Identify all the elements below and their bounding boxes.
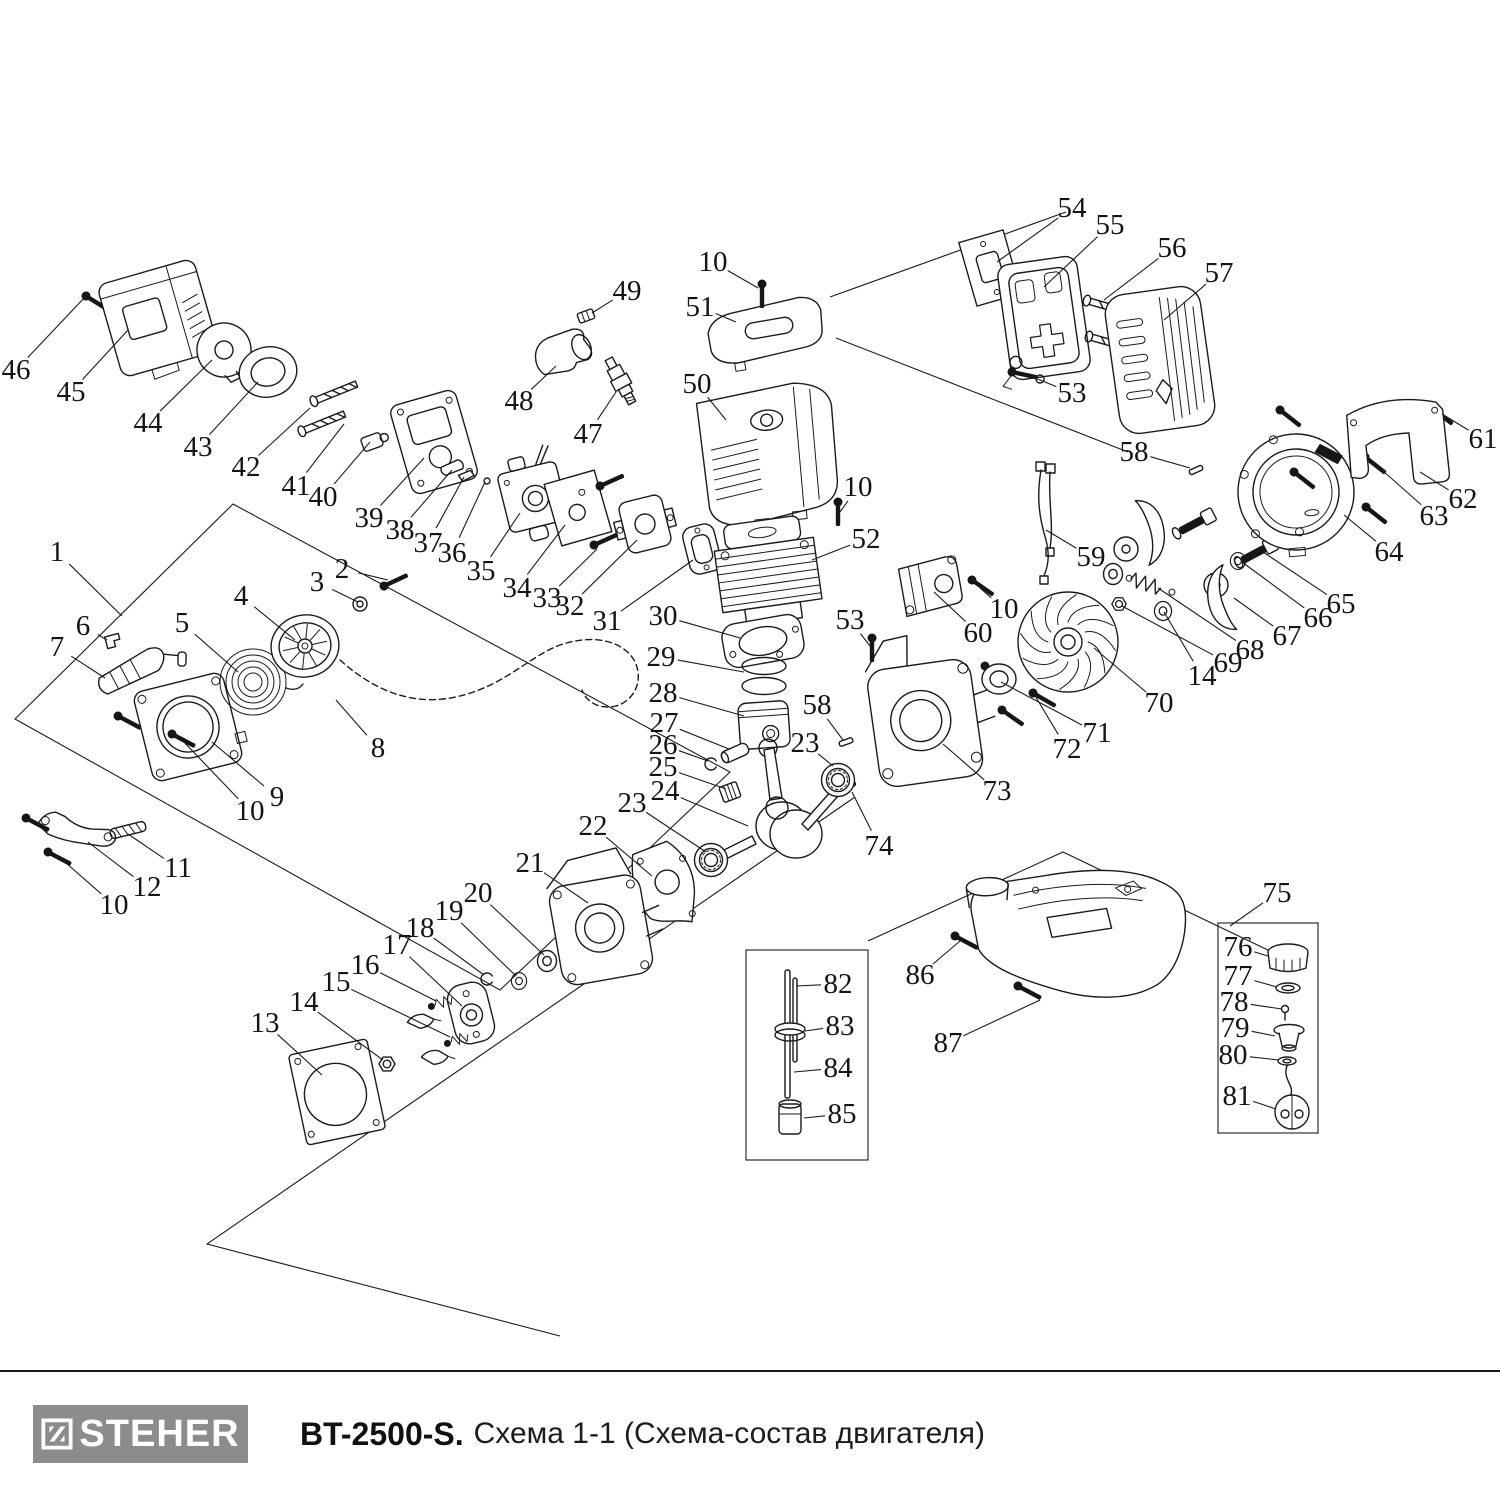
part-screw-10-top [758,280,767,309]
part-base-gasket-30 [720,612,806,669]
leader-line [1150,457,1190,468]
part-number-label: 34 [503,572,533,604]
part-washer-80 [1278,1057,1296,1065]
leader-line [332,589,358,602]
part-number-label: 16 [351,949,380,981]
part-fan-cover-64 [1233,429,1359,561]
part-washer-19 [511,973,526,990]
part-number-label: 66 [1304,602,1333,634]
part-engine-shroud-50 [695,379,843,532]
part-number-label: 11 [164,852,192,884]
leader-line [1344,515,1376,541]
part-fuel-cap-76 [1268,944,1308,972]
part-number-label: 8 [371,732,386,764]
leader-line [1122,606,1213,655]
part-clutch-shoe-left-67a [1135,496,1170,565]
part-number-label: 23 [618,787,647,819]
part-number-label: 45 [57,376,86,408]
leader-line [359,573,388,580]
part-number-label: 4 [234,580,249,612]
part-lever-b [420,1045,455,1067]
footer-divider [0,1370,1500,1372]
part-terminal-49 [577,309,595,324]
diagram-subtitle: Схема 1-1 (Схема-состав двигателя) [474,1417,985,1451]
brand-logo: STEHER [33,1405,248,1463]
part-fuel-filter-85 [779,1100,801,1134]
leader-line [679,773,726,789]
part-number-label: 46 [2,354,31,386]
part-number-label: 10 [100,889,129,921]
leader-line [1250,1057,1279,1060]
part-number-label: 57 [1205,257,1234,289]
part-number-label: 10 [990,593,1019,625]
leader-line [434,938,484,975]
part-washer-14b [1154,602,1171,621]
part-number-label: 53 [1058,377,1087,409]
part-number-label: 14 [290,986,320,1018]
part-number-label: 10 [844,471,873,503]
part-number-label: 21 [516,847,545,879]
leader-line [812,545,850,560]
part-number-label: 73 [983,775,1012,807]
part-number-label: 84 [824,1052,854,1084]
part-number-label: 43 [184,431,213,463]
leader-line [1234,598,1273,626]
leader-line [461,923,516,976]
part-cylinder-52 [711,514,824,629]
part-number-label: 64 [1375,536,1405,568]
part-bolt-cr2 [996,704,1026,729]
leader-line [1164,612,1193,661]
leader-line [804,1116,825,1118]
leader-line [582,540,637,594]
leader-line [728,271,758,288]
model-number: BT-2500-S. [300,1416,464,1453]
page: 1234567891011121013141516171819202122232… [0,0,1500,1500]
part-number-label: 10 [236,795,265,827]
leader-line [679,698,744,716]
leader-line [796,985,821,986]
part-number-label: 39 [355,502,384,534]
leader-line [160,360,212,411]
part-number-label: 55 [1096,209,1125,241]
part-number-label: 62 [1449,483,1478,515]
part-number-label: 13 [251,1007,280,1039]
part-number-label: 54 [1058,192,1088,224]
leader-line [1254,981,1277,987]
part-number-label: 37 [414,527,443,559]
leader-line [1252,1031,1275,1036]
part-number-label: 30 [649,600,678,632]
part-number-label: 10 [699,246,728,278]
leader-line [681,798,748,826]
part-screw-upper [594,471,626,492]
part-washer-20 [538,951,557,972]
part-clutch-hub-left [1114,537,1138,561]
part-ignition-coil-60 [898,555,964,616]
part-number-label: 56 [1158,232,1187,264]
part-washer-3 [353,597,367,611]
part-piston-28 [738,700,791,749]
part-fuel-line-82-84 [775,970,805,1098]
part-number-label: 27 [650,707,679,739]
part-number-label: 63 [1420,500,1449,532]
part-number-label: 31 [593,605,622,637]
part-number-label: 49 [613,275,642,307]
leader-line [334,442,370,484]
part-number-label: 15 [322,966,351,998]
part-starter-housing-9 [132,669,251,782]
part-number-label: 33 [533,582,562,614]
part-plate-13 [288,1039,385,1146]
leader-line [794,1070,821,1072]
part-rope-8 [340,640,638,707]
part-number-label: 22 [579,810,608,842]
leader-line [827,719,843,740]
part-number-label: 83 [826,1010,855,1042]
part-number-label: 81 [1223,1080,1252,1112]
part-number-label: 58 [803,689,832,721]
part-pin-78 [1282,1006,1289,1021]
part-wrist-pin-27 [720,742,750,764]
leader-line [818,754,833,766]
part-number-label: 51 [686,291,715,323]
part-number-label: 76 [1224,931,1253,963]
leader-line [1251,1004,1282,1009]
part-number-label: 18 [406,912,435,944]
part-number-label: 41 [282,470,311,502]
part-number-label: 38 [386,514,415,546]
part-pin-58b [1189,465,1204,475]
part-crankcase-right-73 [861,625,1002,789]
part-seal-71 [982,664,1016,694]
leader-line [559,549,597,586]
leader-line [1263,552,1327,595]
part-number-label: 23 [791,727,820,759]
part-pin-58a [839,737,854,746]
leader-line [58,856,101,894]
part-number-label: 6 [76,610,91,642]
part-number-label: 75 [1263,877,1292,909]
part-muffler-body-55 [986,255,1092,390]
brand-glyph-icon [41,1418,73,1450]
part-number-label: 70 [1145,687,1174,719]
part-number-label: 67 [1273,620,1302,652]
part-washer-77 [1276,983,1300,993]
part-screw-fc1 [1274,404,1304,430]
part-bolt-clutch-top [1170,507,1217,541]
part-number-label: 85 [828,1098,857,1130]
leader-line [88,842,133,877]
part-washer-fw [1104,564,1123,585]
part-number-label: 60 [964,617,993,649]
part-rope-reel-4 [265,609,344,684]
part-insulator-32 [610,492,681,557]
part-spark-plug-47 [601,355,640,408]
part-grommet-79 [1274,1025,1304,1052]
leader-line [490,513,520,557]
part-wires-59 [1036,462,1055,584]
part-circlip-18 [481,973,492,985]
exploded-diagram: 1234567891011121013141516171819202122232… [0,0,1500,1352]
part-bearing-23b [822,764,855,797]
part-number-label: 7 [50,631,65,663]
leader-line [258,408,310,455]
part-gasket-plate-34 [544,470,612,546]
part-number-label: 2 [335,553,350,585]
part-number-label: 5 [175,607,190,639]
leader-line [597,392,616,420]
leader-line [805,1028,823,1031]
leader-line [195,634,238,672]
part-number-label: 44 [134,407,164,439]
part-number-label: 61 [1469,423,1498,455]
leader-line [380,973,436,1001]
part-number-label: 50 [683,368,712,400]
part-number-label: 20 [464,877,493,909]
part-clip-6 [105,633,122,648]
part-number-label: 87 [934,1027,963,1059]
part-number-label: 40 [309,481,338,513]
part-screw-10-cyl [834,498,843,527]
part-number-label: 14 [1188,660,1218,692]
part-screw-41 [309,379,359,408]
part-screw-2 [378,571,409,592]
leader-line [1442,414,1468,430]
leader-line [128,834,164,858]
part-number-label: 80 [1219,1039,1248,1071]
leader-line [336,700,367,735]
leader-line [28,296,86,358]
part-number-label: 28 [649,677,678,709]
part-fuel-tank-87 [966,866,1190,1005]
leader-line [963,1000,1040,1036]
part-number-label: 86 [906,959,935,991]
part-number-label: 71 [1083,717,1112,749]
part-number-label: 58 [1120,436,1149,468]
part-lever-a [406,1008,441,1032]
leader-line [69,564,122,616]
brand-name: STEHER [79,1413,239,1456]
part-screw-fc2 [1360,501,1390,527]
part-number-label: 69 [1214,647,1243,679]
leader-line [680,729,729,749]
part-nut-69 [1112,598,1126,610]
part-muffler-cover-57 [1103,284,1218,436]
part-number-label: 12 [133,871,162,903]
part-bracket-62 [1344,395,1450,491]
diagram-title: BT-2500-S. Схема 1-1 (Схема-состав двига… [300,1405,985,1463]
part-bearing-23a [695,844,728,877]
leader-line [210,382,258,435]
part-number-label: 74 [865,830,895,862]
leader-line [1242,562,1304,608]
part-number-label: 47 [574,418,603,450]
part-number-label: 72 [1053,733,1082,765]
part-flywheel-70 [1018,592,1118,692]
leader-line [459,482,485,538]
part-number-label: 19 [435,895,464,927]
part-number-label: 1 [50,536,65,568]
part-plug-cap-48 [529,323,597,381]
part-number-label: 35 [467,555,496,587]
part-top-cover-51 [705,294,829,375]
leader-line [933,941,960,964]
part-number-label: 29 [647,641,676,673]
part-number-label: 82 [824,968,853,1000]
leader-line [71,656,105,678]
part-number-label: 59 [1077,541,1106,573]
part-needle-bearing-25 [719,781,741,802]
part-number-label: 52 [852,523,881,555]
part-number-label: 48 [505,385,534,417]
leader-line [592,300,613,313]
part-retainer-81 [1275,1066,1309,1129]
leader-line [351,989,450,1037]
part-number-label: 53 [836,604,865,636]
leader-line [490,905,544,955]
leader-line [527,525,565,574]
part-number-label: 9 [270,781,285,813]
leader-line [1254,952,1268,956]
part-number-label: 3 [310,566,325,598]
part-clutch-shoe-right-67 [1201,565,1236,634]
part-number-label: 42 [232,451,261,483]
leader-line [852,792,871,831]
leader-line [1253,1101,1276,1109]
